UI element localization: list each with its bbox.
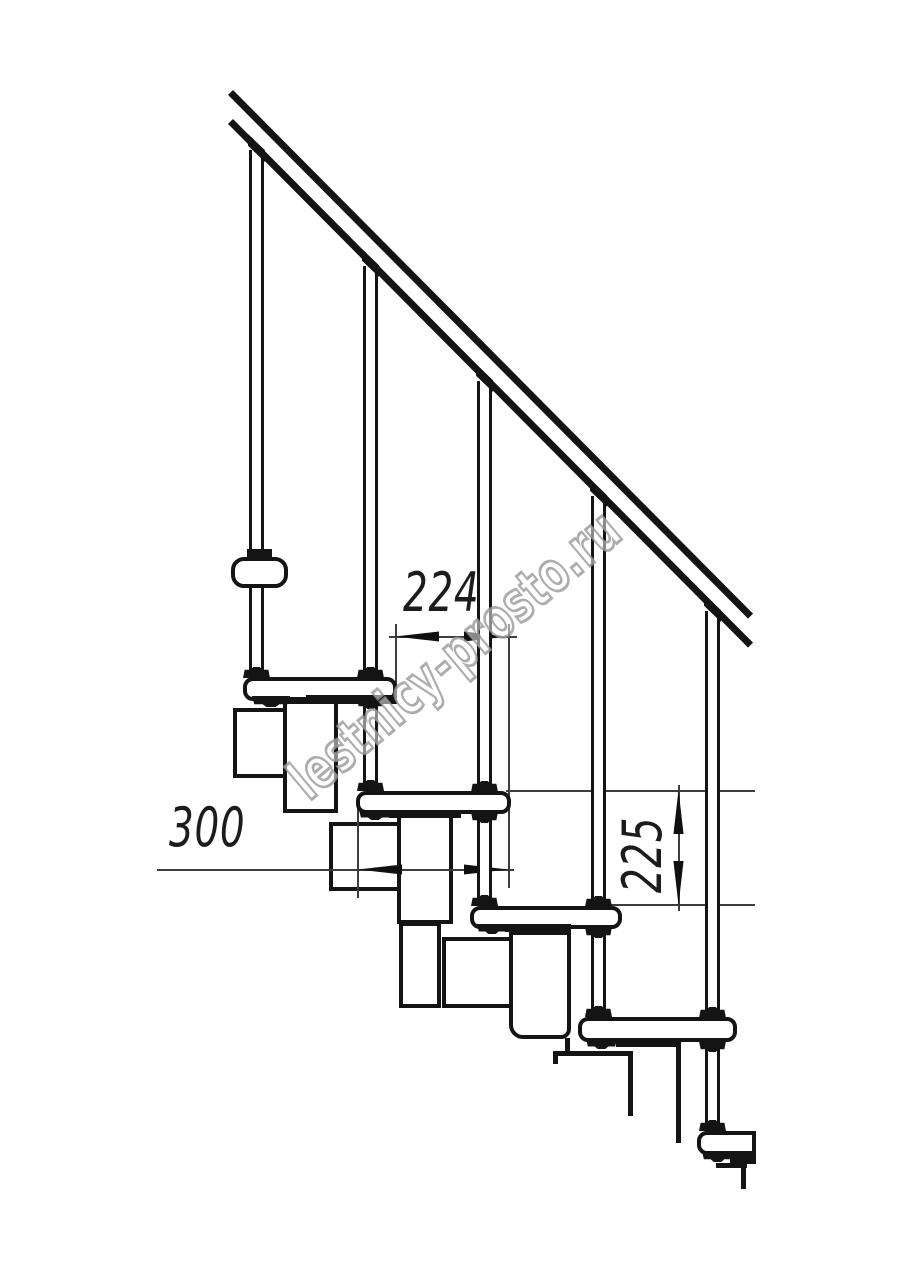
post-4 bbox=[591, 935, 606, 1010]
post-5-top-plate bbox=[699, 1041, 726, 1052]
baluster-1-foot bbox=[243, 667, 270, 678]
dim-text-300: 300 bbox=[169, 801, 245, 855]
ext-line-224-300-shared bbox=[508, 624, 510, 888]
baluster-5 bbox=[705, 611, 720, 1011]
post-4-top-plate bbox=[585, 927, 612, 938]
module-4-partial-right bbox=[628, 1051, 633, 1116]
post-4-foot bbox=[585, 1006, 612, 1017]
module-5-partial-edge bbox=[676, 1041, 681, 1143]
post-5 bbox=[705, 1049, 720, 1124]
watermark-text: lestnicy-prosto.ru bbox=[276, 498, 634, 813]
post-3-top-plate bbox=[471, 812, 498, 823]
tread-4-underplate bbox=[616, 1039, 677, 1047]
tread-4-clamp bbox=[586, 1039, 617, 1049]
post-2-foot bbox=[357, 780, 384, 791]
tread-2-clamp bbox=[359, 810, 391, 820]
tread-2-underplate bbox=[389, 810, 461, 818]
tread-3-clamp bbox=[477, 924, 507, 934]
dim-text-225-value: 225 bbox=[616, 817, 670, 893]
dim-line-300 bbox=[157, 869, 514, 871]
module-2-collar bbox=[329, 822, 403, 891]
baluster-1 bbox=[249, 150, 264, 671]
module-4-partial-top bbox=[553, 1051, 633, 1056]
baluster-5-foot bbox=[699, 1007, 726, 1018]
baluster-3-foot bbox=[471, 781, 498, 792]
module-3-body bbox=[509, 931, 571, 1039]
tread-5-clamp bbox=[702, 1151, 733, 1162]
module-6-partial-right bbox=[741, 1163, 746, 1189]
module-2-lower-block bbox=[399, 922, 441, 1008]
baluster-2 bbox=[363, 266, 378, 671]
module-2-body bbox=[397, 812, 453, 924]
post-3 bbox=[477, 820, 492, 899]
tread-3-underplate bbox=[505, 924, 571, 932]
post-5-foot bbox=[699, 1120, 726, 1131]
wall-bracket bbox=[231, 557, 288, 588]
staircase-technical-drawing: 224 300 225 bbox=[0, 0, 914, 1280]
post-3-foot bbox=[471, 895, 498, 906]
tread-5-underplate bbox=[730, 1155, 756, 1164]
ext-line-300-left bbox=[357, 806, 359, 898]
